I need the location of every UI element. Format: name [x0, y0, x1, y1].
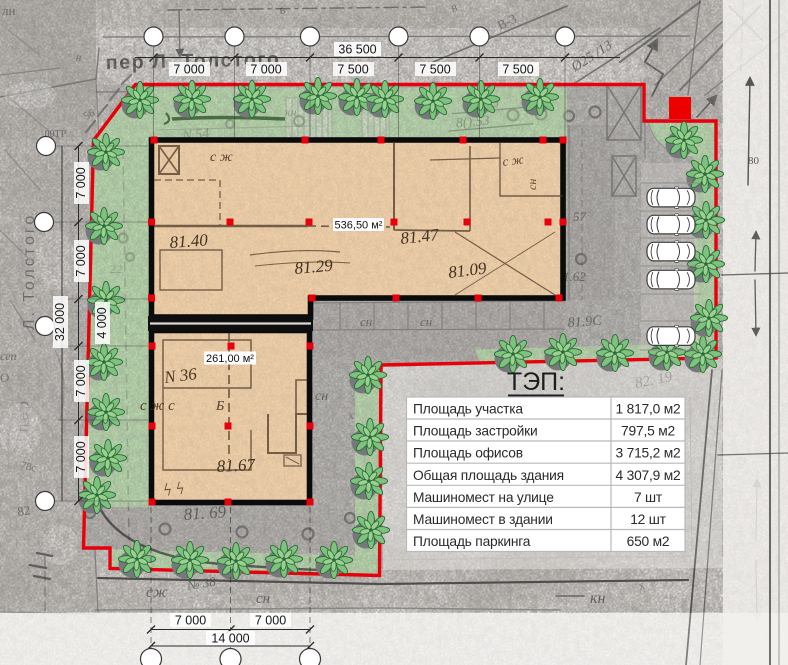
svg-text:12 шт: 12 шт [630, 512, 666, 527]
svg-text:Б: Б [215, 399, 224, 414]
svg-text:3 715,2 м2: 3 715,2 м2 [615, 446, 680, 461]
svg-text:7 000: 7 000 [250, 63, 281, 77]
svg-text:ϟ ϟ: ϟ ϟ [162, 478, 185, 500]
svg-text:36 500: 36 500 [338, 43, 376, 57]
svg-text:536,50 м²: 536,50 м² [335, 220, 383, 232]
svg-text:261,00 м²: 261,00 м² [206, 353, 254, 365]
svg-text:7 500: 7 500 [502, 63, 533, 77]
svg-text:7 000: 7 000 [74, 167, 88, 198]
svg-text:Машиномест в здании: Машиномест в здании [413, 512, 553, 527]
svg-text:с ж с: с ж с [140, 398, 175, 414]
svg-text:7 000: 7 000 [255, 614, 286, 628]
svg-text:81.29: 81.29 [294, 256, 334, 278]
svg-text:Площадь паркинга: Площадь паркинга [413, 534, 531, 549]
svg-text:Площадь офисов: Площадь офисов [413, 446, 523, 461]
svg-text:650 м2: 650 м2 [627, 534, 670, 549]
svg-text:7 000: 7 000 [74, 441, 88, 472]
svg-text:7 500: 7 500 [419, 63, 450, 77]
svg-text:32 000: 32 000 [53, 303, 67, 341]
svg-text:с ж: с ж [210, 150, 233, 165]
svg-text:7 000: 7 000 [74, 245, 88, 276]
svg-text:Общая площадь здания: Общая площадь здания [413, 468, 564, 483]
svg-text:4 000: 4 000 [95, 307, 109, 338]
svg-text:Площадь застройки: Площадь застройки [413, 424, 538, 439]
svg-text:7 шт: 7 шт [634, 490, 663, 505]
svg-text:7 500: 7 500 [337, 63, 368, 77]
svg-text:4 307,9 м2: 4 307,9 м2 [615, 468, 680, 483]
svg-text:7 000: 7 000 [173, 63, 204, 77]
svg-text:7 000: 7 000 [74, 365, 88, 396]
svg-text:81.40: 81.40 [169, 230, 209, 252]
svg-text:ТЭП:: ТЭП: [507, 368, 565, 396]
svg-text:81.67: 81.67 [216, 455, 257, 476]
svg-text:1 817,0 м2: 1 817,0 м2 [615, 402, 680, 417]
svg-text:с ж: с ж [502, 152, 525, 169]
svg-text:80: 80 [748, 155, 760, 167]
svg-text:Машиномест на улице: Машиномест на улице [413, 490, 554, 505]
svg-text:14 000: 14 000 [211, 632, 249, 646]
svg-text:Площадь участка: Площадь участка [413, 402, 523, 417]
svg-text:797,5 м2: 797,5 м2 [621, 424, 675, 439]
svg-text:7 000: 7 000 [175, 614, 206, 628]
svg-text:сн: сн [525, 179, 539, 190]
